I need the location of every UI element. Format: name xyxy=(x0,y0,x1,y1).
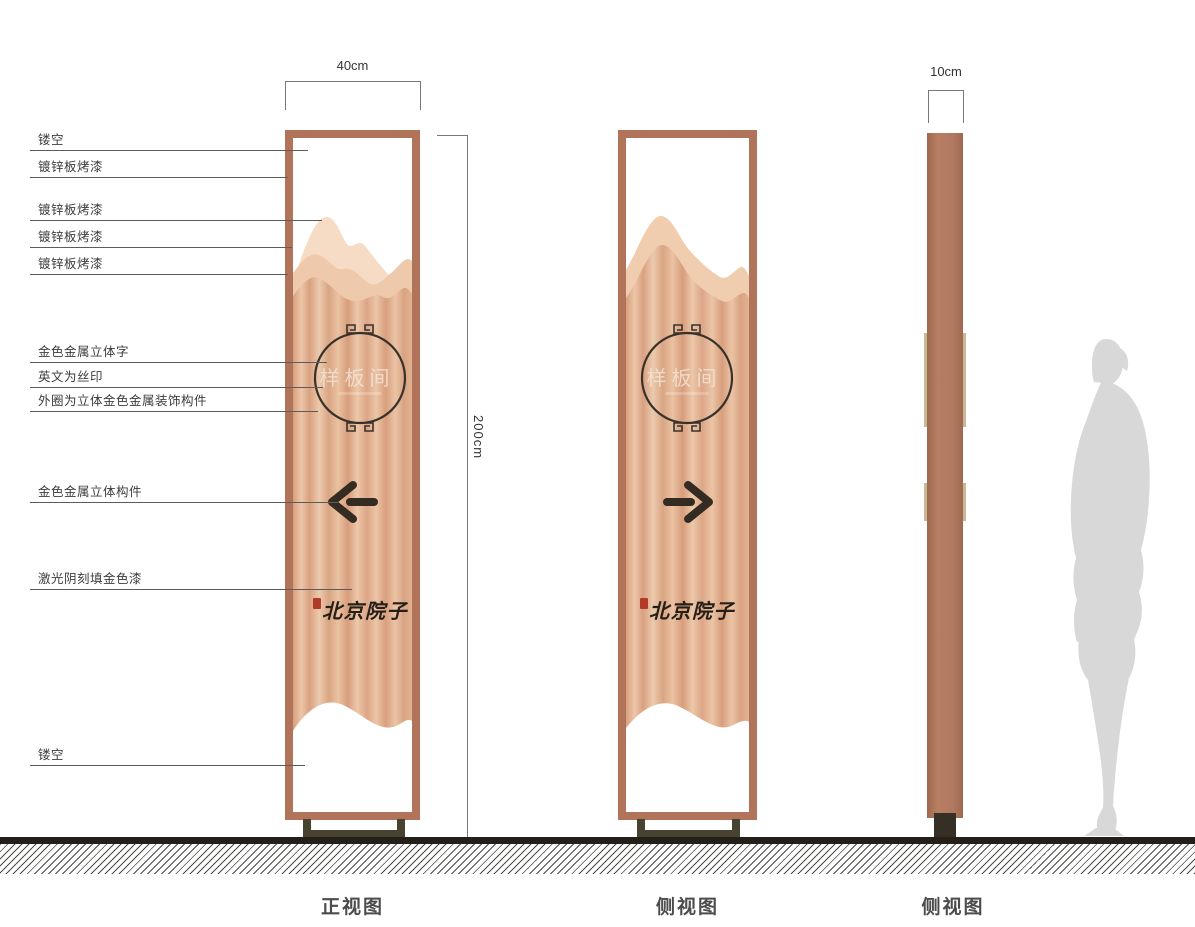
callout-label: 镀锌板烤漆 xyxy=(30,203,103,217)
person-silhouette-icon xyxy=(1071,339,1150,836)
signage-design-drawing: 镂空 镀锌板烤漆 镀锌板烤漆 镀锌板烤漆 镀锌板烤漆 金色金属立体字 英文为丝印… xyxy=(0,0,1195,927)
dimension-height-label: 200cm xyxy=(471,415,486,459)
front-view-panel: 样板间 北京院子 xyxy=(285,130,420,820)
callout-label: 英文为丝印 xyxy=(30,370,103,384)
callout-gold-3d-letters: 金色金属立体字 xyxy=(30,344,327,363)
profile-view-panel xyxy=(927,133,963,818)
profile-view-pedestal xyxy=(934,813,956,838)
callout-gold-ring-ornament: 外圈为立体金色金属装饰构件 xyxy=(30,393,318,412)
human-scale-silhouette xyxy=(1032,336,1172,838)
front-view-pedestal xyxy=(303,819,405,838)
callout-label: 金色金属立体字 xyxy=(30,345,129,359)
silkprint-english-mark xyxy=(665,392,709,395)
view-title-front: 正视图 xyxy=(285,892,420,919)
room-name-text: 样板间 xyxy=(647,367,722,390)
dimension-height-line xyxy=(467,135,468,837)
ground-line xyxy=(0,837,1195,844)
callout-label: 镀锌板烤漆 xyxy=(30,160,103,174)
dimension-width-bracket xyxy=(285,81,421,110)
callout-galvanized-4: 镀锌板烤漆 xyxy=(30,256,288,275)
callout-galvanized-1: 镀锌板烤漆 xyxy=(30,159,288,178)
view-title-side: 侧视图 xyxy=(618,892,757,919)
callout-galvanized-3: 镀锌板烤漆 xyxy=(30,229,292,248)
side-view-panel: 样板间 北京院子 xyxy=(618,130,757,820)
dimension-width-label: 40cm xyxy=(285,58,420,73)
callout-label: 镂空 xyxy=(30,748,64,762)
silkprint-english-mark xyxy=(338,392,382,395)
red-seal-icon xyxy=(640,598,648,609)
brand-calligraphy: 北京院子 xyxy=(649,600,735,623)
brand-calligraphy: 北京院子 xyxy=(322,600,408,623)
callout-laser-engraving: 激光阴刻填金色漆 xyxy=(30,571,352,590)
callout-hollow-bottom: 镂空 xyxy=(30,747,305,766)
callout-label: 激光阴刻填金色漆 xyxy=(30,572,142,586)
callout-label: 镀锌板烤漆 xyxy=(30,230,103,244)
callout-galvanized-2: 镀锌板烤漆 xyxy=(30,202,322,221)
callout-hollow-top: 镂空 xyxy=(30,132,308,151)
callout-silkprint-english: 英文为丝印 xyxy=(30,369,323,388)
callout-label: 镂空 xyxy=(30,133,64,147)
room-name-text: 样板间 xyxy=(320,367,395,390)
dimension-depth-bracket xyxy=(928,90,964,123)
ground-hatching xyxy=(0,844,1195,874)
callout-label: 金色金属立体构件 xyxy=(30,485,142,499)
callout-label: 镀锌板烤漆 xyxy=(30,257,103,271)
callout-gold-3d-component: 金色金属立体构件 xyxy=(30,484,338,503)
dimension-depth-label: 10cm xyxy=(928,64,964,79)
callout-label: 外圈为立体金色金属装饰构件 xyxy=(30,394,207,408)
dimension-height-tick xyxy=(437,135,467,136)
red-seal-icon xyxy=(313,598,321,609)
view-title-profile: 侧视图 xyxy=(908,892,998,919)
side-view-pedestal xyxy=(637,819,740,838)
